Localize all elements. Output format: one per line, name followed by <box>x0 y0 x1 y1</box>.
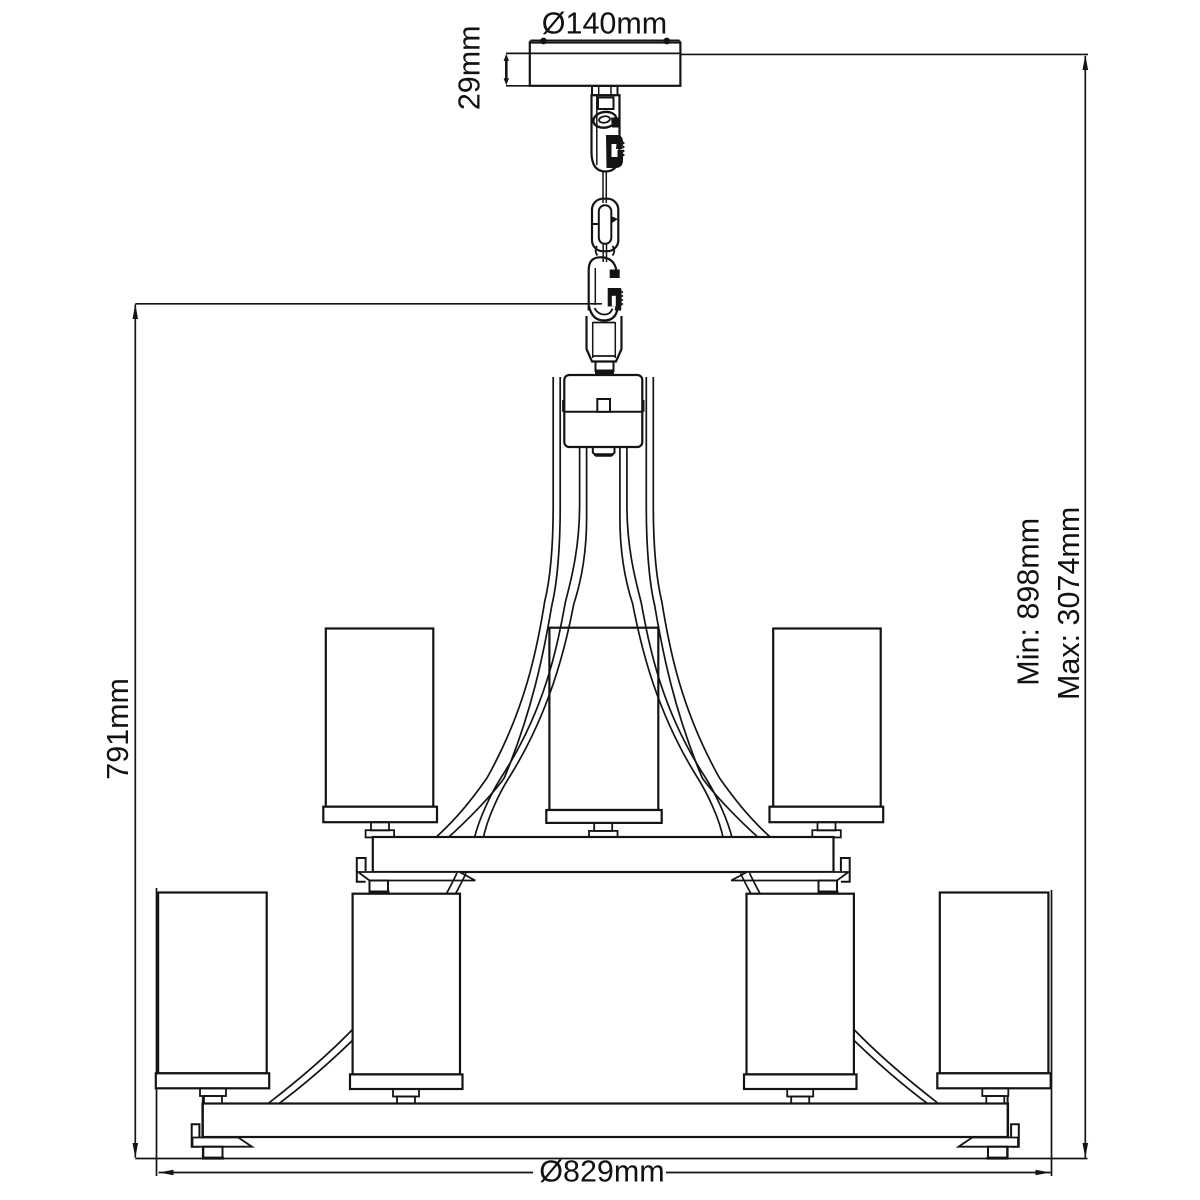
svg-text:Ø829mm: Ø829mm <box>539 1155 664 1189</box>
svg-text:791mm: 791mm <box>101 678 135 780</box>
svg-text:Min: 898mm: Min: 898mm <box>1012 518 1046 686</box>
svg-text:Max: 3074mm: Max: 3074mm <box>1052 507 1086 700</box>
svg-text:29mm: 29mm <box>453 25 487 110</box>
svg-text:Ø140mm: Ø140mm <box>542 7 667 41</box>
